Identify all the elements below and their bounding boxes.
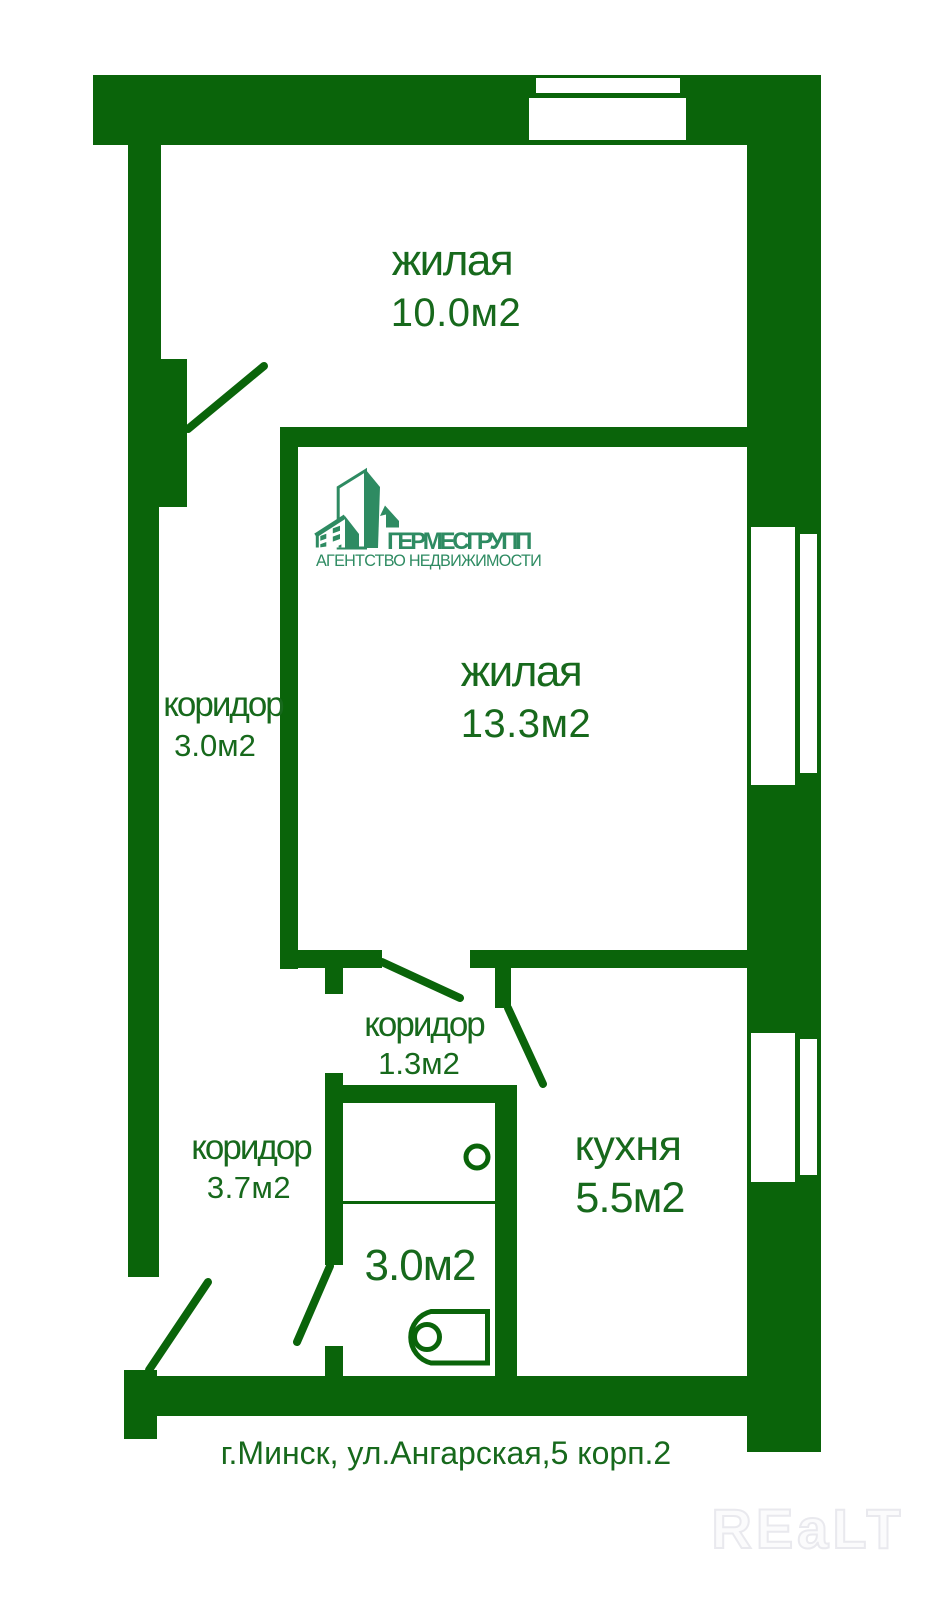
svg-text:3.0м2: 3.0м2	[365, 1241, 476, 1290]
svg-text:коридор: коридор	[364, 1005, 484, 1044]
svg-text:ГЕРМЕСГРУПП: ГЕРМЕСГРУПП	[387, 528, 531, 555]
svg-text:REaLT: REaLT	[711, 1497, 904, 1560]
svg-text:кухня: кухня	[575, 1122, 682, 1170]
svg-text:5.5м2: 5.5м2	[575, 1174, 684, 1222]
svg-text:коридор: коридор	[163, 685, 283, 724]
svg-text:3.0м2: 3.0м2	[174, 728, 256, 763]
svg-text:жилая: жилая	[461, 647, 581, 696]
svg-text:АГЕНТСТВО НЕДВИЖИМОСТИ: АГЕНТСТВО НЕДВИЖИМОСТИ	[316, 552, 541, 570]
svg-text:10.0м2: 10.0м2	[391, 291, 522, 335]
svg-text:коридор: коридор	[191, 1128, 311, 1167]
svg-text:3.7м2: 3.7м2	[207, 1170, 291, 1205]
svg-text:1.3м2: 1.3м2	[378, 1046, 460, 1081]
svg-text:13.3м2: 13.3м2	[461, 702, 592, 746]
svg-text:жилая: жилая	[392, 236, 512, 285]
svg-text:г.Минск, ул.Ангарская,5 корп.2: г.Минск, ул.Ангарская,5 корп.2	[221, 1435, 671, 1471]
